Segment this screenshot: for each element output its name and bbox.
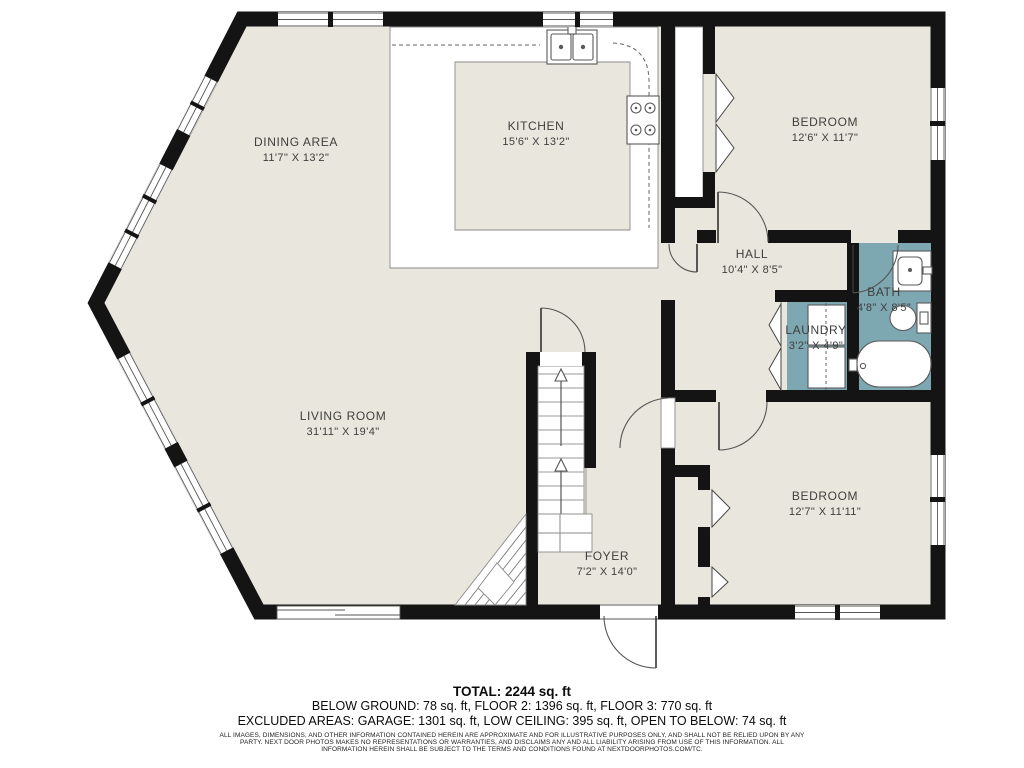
room-label-bath: BATH 4'8" X 8'5" (857, 284, 911, 316)
bedroom2-window (930, 455, 945, 545)
room-dimensions: 3'2" X 4'9" (785, 338, 846, 354)
room-name: BEDROOM (792, 114, 859, 130)
room-label-foyer: FOYER 7'2" X 14'0" (577, 548, 638, 580)
room-name: LIVING ROOM (300, 408, 387, 424)
room-name: DINING AREA (254, 134, 338, 150)
excluded-areas-text: EXCLUDED AREAS: GARAGE: 1301 sq. ft, LOW… (0, 714, 1024, 729)
room-label-living-room: LIVING ROOM 31'11" X 19'4" (300, 408, 387, 440)
room-dimensions: 15'6" X 13'2" (502, 134, 569, 150)
room-dimensions: 10'4" X 8'5" (722, 262, 783, 278)
room-name: LAUNDRY (785, 322, 846, 338)
floor-plan-drawing (0, 0, 1024, 768)
room-dimensions: 11'7" X 13'2" (254, 150, 338, 166)
room-dimensions: 12'6" X 11'7" (792, 130, 859, 146)
room-dimensions: 4'8" X 8'5" (857, 300, 911, 316)
room-label-bedroom-2: BEDROOM 12'7" X 11'11" (789, 488, 861, 520)
floor-areas-text: BELOW GROUND: 78 sq. ft, FLOOR 2: 1396 s… (0, 699, 1024, 714)
room-dimensions: 7'2" X 14'0" (577, 564, 638, 580)
stove-icon (627, 96, 659, 144)
bedroom1-window (930, 88, 945, 160)
room-label-bedroom-1: BEDROOM 12'6" X 11'7" (792, 114, 859, 146)
room-label-dining-area: DINING AREA 11'7" X 13'2" (254, 134, 338, 166)
room-label-kitchen: KITCHEN 15'6" X 13'2" (502, 118, 569, 150)
kitchen-window (543, 12, 613, 27)
living-room-south-window (277, 606, 400, 619)
floor-plan: DINING AREA 11'7" X 13'2" KITCHEN 15'6" … (0, 0, 1024, 768)
bedroom2-south-window (795, 605, 880, 620)
dining-window (278, 12, 383, 27)
total-area-text: TOTAL: 2244 sq. ft (0, 684, 1024, 699)
disclaimer-text: ALL IMAGES, DIMENSIONS, AND OTHER INFORM… (220, 732, 805, 753)
room-dimensions: 31'11" X 19'4" (300, 424, 387, 440)
stair-landing-icon (538, 514, 592, 552)
room-name: HALL (722, 246, 783, 262)
floorplan-page: DINING AREA 11'7" X 13'2" KITCHEN 15'6" … (0, 0, 1024, 768)
kitchen-sink-icon (547, 25, 597, 64)
room-label-hall: HALL 10'4" X 8'5" (722, 246, 783, 278)
room-name: FOYER (577, 548, 638, 564)
room-name: BEDROOM (789, 488, 861, 504)
room-dimensions: 12'7" X 11'11" (789, 504, 861, 520)
front-door-icon (600, 604, 658, 668)
room-name: KITCHEN (502, 118, 569, 134)
room-label-laundry: LAUNDRY 3'2" X 4'9" (785, 322, 846, 354)
room-name: BATH (857, 284, 911, 300)
summary-footer: TOTAL: 2244 sq. ft BELOW GROUND: 78 sq. … (0, 684, 1024, 753)
bedroom1-closet (675, 27, 703, 199)
